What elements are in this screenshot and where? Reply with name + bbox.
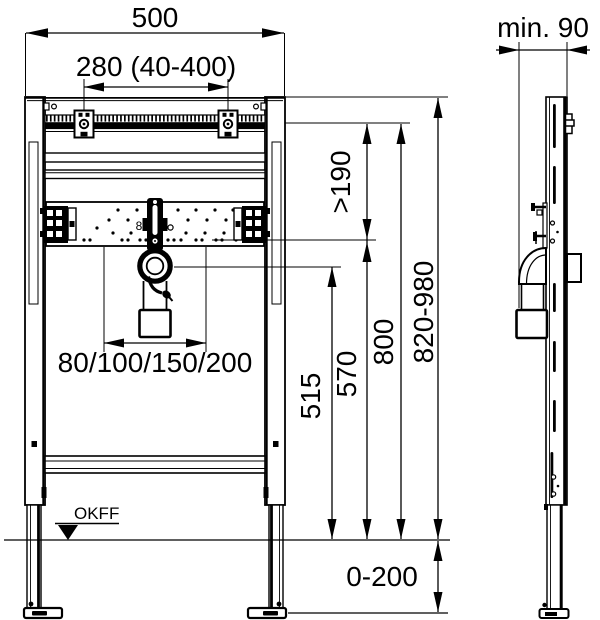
dim-rail-height: 800	[368, 124, 406, 539]
rail-hole-round-left	[52, 104, 57, 109]
floor-level-label: OKFF	[74, 504, 119, 523]
plate-clamp-right	[234, 206, 270, 243]
technical-drawing-page: 8	[0, 0, 600, 620]
drain-trap	[140, 251, 173, 337]
dim-drain-height-label: 515	[295, 373, 326, 420]
dim-clearance-label: >190	[325, 150, 356, 213]
dim-rail-height-label: 800	[368, 319, 399, 366]
rail-slider-right	[219, 111, 238, 138]
rail-slider-left	[75, 111, 94, 138]
top-rail	[25, 98, 285, 132]
dim-drain-height: 515	[295, 267, 337, 539]
legs-feet	[24, 505, 286, 618]
side-leg-foot	[540, 504, 569, 618]
rail-hole-square-right	[261, 103, 266, 110]
dim-fixing-spacing-label: 280 (40-400)	[76, 51, 236, 82]
side-wall-box	[567, 254, 581, 282]
dim-fixing-spacing: 280 (40-400)	[76, 51, 236, 110]
side-profile	[546, 97, 581, 505]
side-view	[517, 97, 582, 618]
dim-leg-adjust-label: 0-200	[346, 561, 418, 592]
drain-pipe-socket	[140, 310, 171, 337]
rail-hole-square-left	[44, 103, 49, 110]
upright-hole-right	[273, 441, 279, 447]
rail-hole-round-right	[254, 104, 259, 109]
dim-frame-height: 820-980	[408, 98, 443, 539]
side-trap	[517, 248, 548, 338]
upright-hole-left	[32, 441, 38, 447]
plate-clamp-left	[40, 206, 76, 243]
mounting-plate: 8	[40, 198, 270, 251]
leg-clip-left	[42, 487, 47, 498]
plate-marking-label: 8	[136, 219, 143, 233]
side-basin-bracket	[531, 203, 547, 248]
dim-width-label: 500	[132, 2, 179, 33]
leg-clip-right	[264, 487, 269, 498]
side-pipe-socket	[517, 310, 548, 338]
dim-drain-offsets-label: 80/100/150/200	[58, 347, 253, 378]
level-triangle-icon	[58, 525, 78, 540]
dim-leg-adjust: 0-200	[346, 541, 442, 612]
dim-depth-label: min. 90	[497, 12, 589, 43]
installation-frame-drawing: 8	[0, 0, 600, 620]
dim-frame-height-label: 820-980	[408, 261, 439, 364]
lower-crossbar	[45, 456, 265, 473]
dim-trap-bracket-height: 570	[331, 242, 372, 539]
floor-reference: OKFF	[4, 504, 450, 540]
dim-trap-bracket-height-label: 570	[331, 351, 362, 398]
